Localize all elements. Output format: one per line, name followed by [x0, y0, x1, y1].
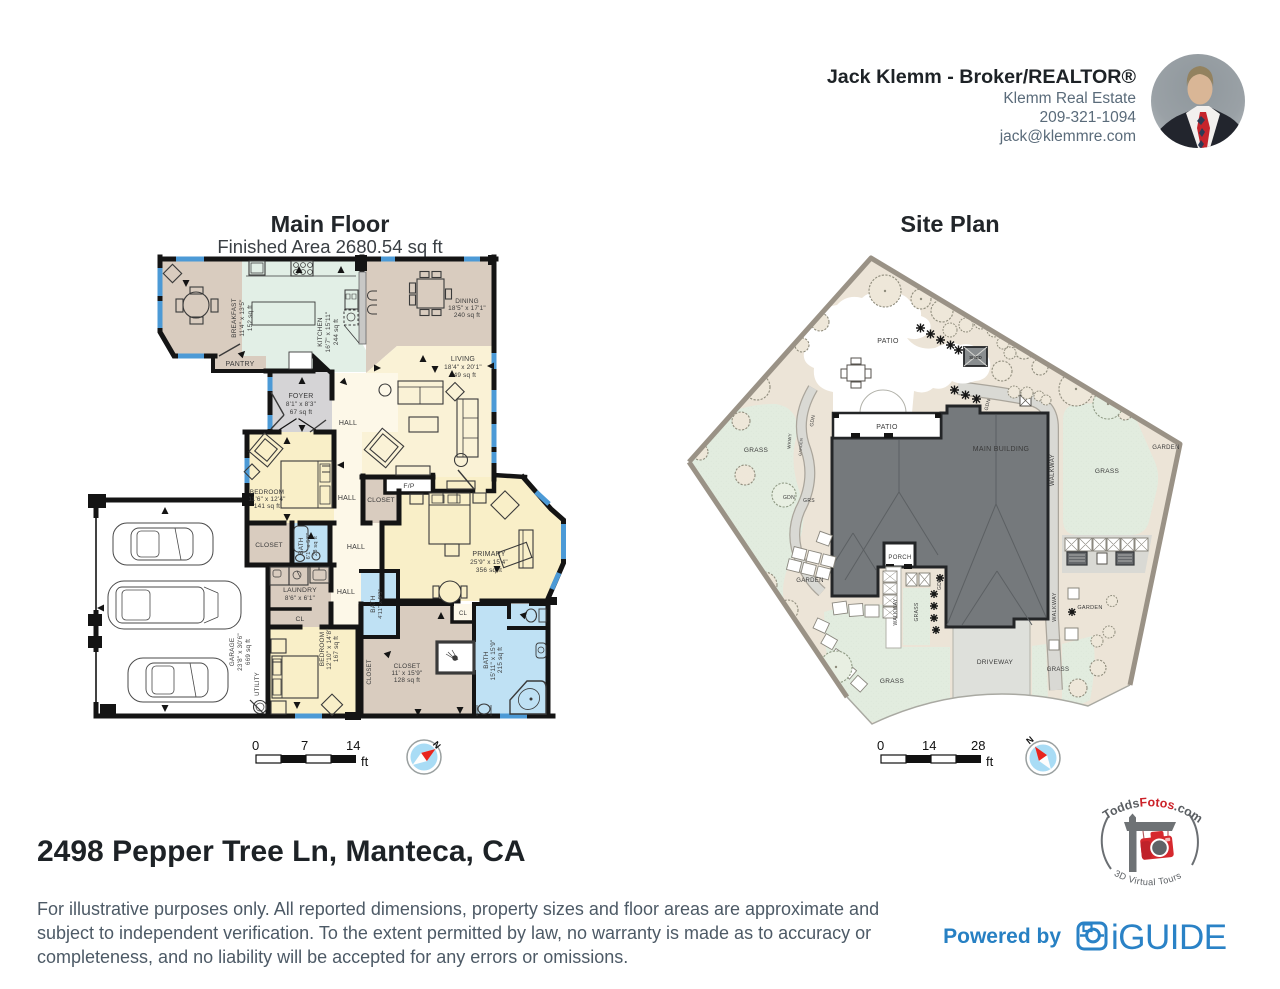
svg-text:3D Virtual Tours: 3D Virtual Tours: [1113, 868, 1183, 887]
svg-text:Jack Klemm - Broker/REALTOR®: Jack Klemm - Broker/REALTOR®: [827, 66, 1137, 88]
svg-text:GARDEN: GARDEN: [796, 578, 823, 584]
svg-text:16'7" x 15'11": 16'7" x 15'11": [325, 312, 332, 353]
svg-text:Finished Area 2680.54 sq ft: Finished Area 2680.54 sq ft: [217, 236, 442, 257]
svg-text:completeness, and no liability: completeness, and no liability will be a…: [37, 947, 628, 967]
svg-text:F/P: F/P: [403, 483, 414, 490]
svg-text:11' x 15'9": 11' x 15'9": [392, 670, 423, 677]
svg-text:GDN: GDN: [937, 578, 943, 590]
svg-text:28: 28: [971, 738, 985, 753]
svg-text:PANTRY: PANTRY: [226, 361, 255, 368]
svg-text:FOYER: FOYER: [288, 393, 313, 400]
svg-text:GRASS: GRASS: [744, 447, 769, 454]
svg-text:BREAKFAST: BREAKFAST: [231, 298, 238, 337]
svg-text:DINING: DINING: [455, 298, 479, 305]
svg-text:GARAGE: GARAGE: [229, 638, 236, 667]
svg-text:CLOSET: CLOSET: [367, 659, 373, 684]
svg-text:Klemm Real Estate: Klemm Real Estate: [1003, 90, 1136, 107]
svg-text:PATIO: PATIO: [877, 338, 899, 345]
svg-text:MAIN BUILDING: MAIN BUILDING: [973, 446, 1029, 453]
svg-text:128 sq ft: 128 sq ft: [394, 677, 420, 684]
svg-text:ft: ft: [986, 754, 994, 769]
svg-text:PATIO: PATIO: [876, 424, 898, 431]
svg-text:GRASS: GRASS: [880, 678, 905, 685]
svg-text:67 sq ft: 67 sq ft: [290, 409, 313, 416]
svg-text:23'8" x 30'6": 23'8" x 30'6": [237, 633, 244, 671]
svg-text:GRS: GRS: [803, 498, 815, 504]
svg-text:HALL: HALL: [338, 495, 356, 502]
svg-text:12'10" x 14'8": 12'10" x 14'8": [326, 628, 333, 669]
svg-text:Powered by: Powered by: [943, 925, 1061, 948]
svg-text:Main Floor: Main Floor: [271, 211, 390, 237]
svg-text:Site Plan: Site Plan: [900, 211, 999, 237]
svg-text:iGUIDE: iGUIDE: [1111, 918, 1227, 957]
svg-text:141 sq ft: 141 sq ft: [254, 503, 280, 510]
svg-text:167 sq ft: 167 sq ft: [333, 636, 340, 662]
svg-text:LAUNDRY: LAUNDRY: [283, 587, 317, 594]
svg-text:SHED: SHED: [969, 355, 982, 360]
svg-text:jack@klemmre.com: jack@klemmre.com: [999, 128, 1136, 145]
svg-text:18'5" x 17'1": 18'5" x 17'1": [448, 305, 486, 312]
svg-text:For illustrative purposes only: For illustrative purposes only. All repo…: [37, 899, 879, 919]
svg-text:240 sq ft: 240 sq ft: [454, 312, 480, 319]
svg-text:GARDEN: GARDEN: [1152, 445, 1179, 451]
svg-text:11'6" x 12'4": 11'6" x 12'4": [248, 496, 285, 503]
svg-text:HALL: HALL: [347, 544, 365, 551]
svg-text:PORCH: PORCH: [888, 555, 911, 561]
svg-text:669 sq ft: 669 sq ft: [245, 639, 252, 665]
svg-text:25'9" x 15'4": 25'9" x 15'4": [470, 559, 508, 566]
svg-text:DRIVEWAY: DRIVEWAY: [977, 659, 1014, 666]
svg-text:subject to independent verific: subject to independent verification. To …: [37, 923, 871, 943]
svg-text:CL: CL: [295, 616, 304, 623]
svg-text:215 sq ft: 215 sq ft: [497, 647, 504, 673]
svg-text:244 sq ft: 244 sq ft: [333, 319, 340, 345]
svg-text:209-321-1094: 209-321-1094: [1039, 109, 1136, 126]
svg-text:18'4" x 20'1": 18'4" x 20'1": [444, 364, 482, 371]
svg-text:BEDROOM: BEDROOM: [250, 489, 284, 496]
svg-text:PRIMARY: PRIMARY: [472, 551, 505, 558]
svg-text:8'1" x 8'3": 8'1" x 8'3": [286, 401, 316, 408]
svg-text:ToddsFotos.com: ToddsFotos.com: [1100, 795, 1205, 826]
svg-text:CLOSET: CLOSET: [367, 497, 395, 504]
svg-text:BATH: BATH: [298, 537, 305, 555]
svg-text:7: 7: [301, 738, 308, 753]
svg-text:LIVING: LIVING: [451, 356, 475, 363]
svg-text:0: 0: [877, 738, 884, 753]
svg-text:ft: ft: [361, 754, 369, 769]
svg-text:CLOSET: CLOSET: [255, 542, 283, 549]
svg-text:UTILITY: UTILITY: [255, 672, 261, 696]
svg-text:GRASS: GRASS: [1095, 468, 1120, 475]
svg-text:11'4" x 13'5": 11'4" x 13'5": [239, 299, 246, 336]
svg-text:BATH: BATH: [483, 651, 490, 669]
svg-text:4'11" x 9'3": 4'11" x 9'3": [378, 589, 384, 619]
svg-text:152 sq ft: 152 sq ft: [247, 305, 254, 331]
svg-text:CL: CL: [459, 611, 468, 617]
svg-text:14: 14: [922, 738, 936, 753]
svg-text:GDN: GDN: [783, 495, 795, 501]
svg-text:BATH: BATH: [370, 595, 377, 613]
svg-text:GRASS: GRASS: [914, 602, 920, 621]
svg-text:WALKWAY: WALKWAY: [893, 598, 899, 625]
svg-text:14: 14: [346, 738, 360, 753]
svg-text:GRASS: GRASS: [1047, 667, 1070, 673]
svg-text:WALKWAY: WALKWAY: [1052, 592, 1058, 621]
svg-text:0: 0: [252, 738, 259, 753]
svg-text:2498 Pepper Tree Ln, Manteca,: 2498 Pepper Tree Ln, Manteca, CA: [37, 835, 526, 868]
svg-text:HALL: HALL: [339, 420, 357, 427]
svg-text:BEDROOM: BEDROOM: [319, 632, 326, 666]
svg-text:WALKWAY: WALKWAY: [1050, 454, 1056, 486]
svg-text:GARDEN: GARDEN: [1077, 605, 1102, 611]
svg-text:8'6" x 6'1": 8'6" x 6'1": [285, 595, 315, 602]
svg-text:15'11" x 15'9": 15'11" x 15'9": [490, 640, 497, 681]
svg-text:CLOSET: CLOSET: [394, 663, 421, 670]
svg-text:KITCHEN: KITCHEN: [317, 317, 324, 347]
svg-text:HALL: HALL: [337, 589, 355, 596]
